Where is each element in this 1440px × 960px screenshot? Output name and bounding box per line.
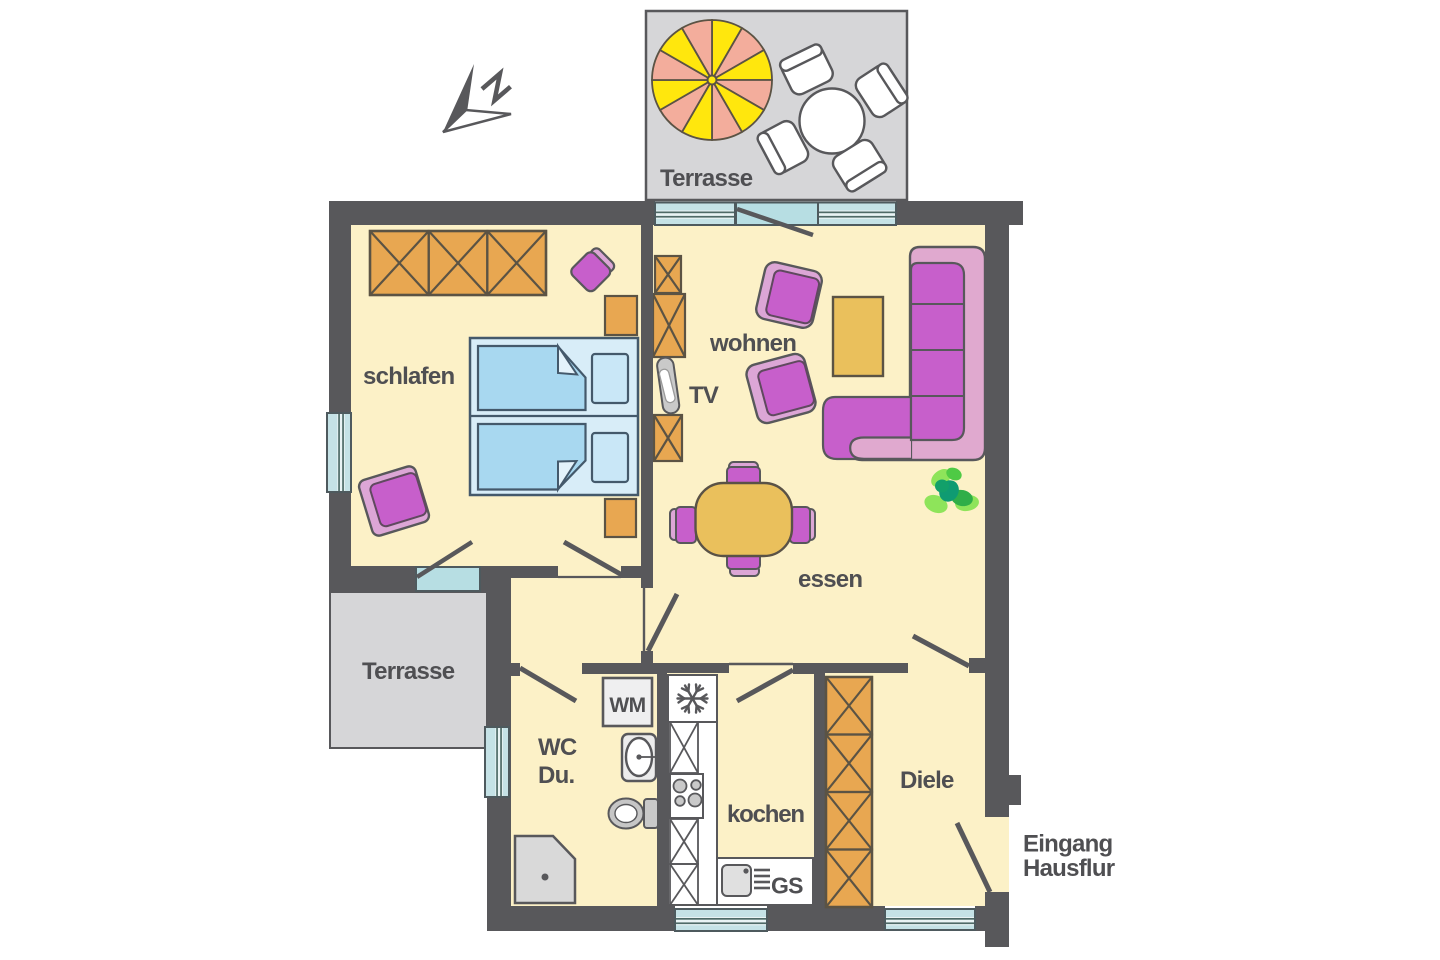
svg-text:Eingang: Eingang — [1023, 831, 1113, 858]
svg-text:WM: WM — [609, 694, 645, 717]
svg-text:Du.: Du. — [538, 762, 574, 789]
svg-text:Hausflur: Hausflur — [1023, 855, 1115, 882]
svg-text:kochen: kochen — [727, 801, 804, 828]
svg-text:Diele: Diele — [900, 767, 954, 794]
svg-text:schlafen: schlafen — [363, 363, 454, 390]
svg-text:GS: GS — [771, 873, 803, 899]
svg-text:Terrasse: Terrasse — [362, 658, 455, 685]
svg-text:TV: TV — [689, 382, 719, 409]
svg-text:essen: essen — [798, 566, 862, 593]
svg-text:wohnen: wohnen — [709, 330, 796, 357]
svg-text:Terrasse: Terrasse — [660, 165, 753, 192]
svg-text:WC: WC — [538, 734, 577, 761]
